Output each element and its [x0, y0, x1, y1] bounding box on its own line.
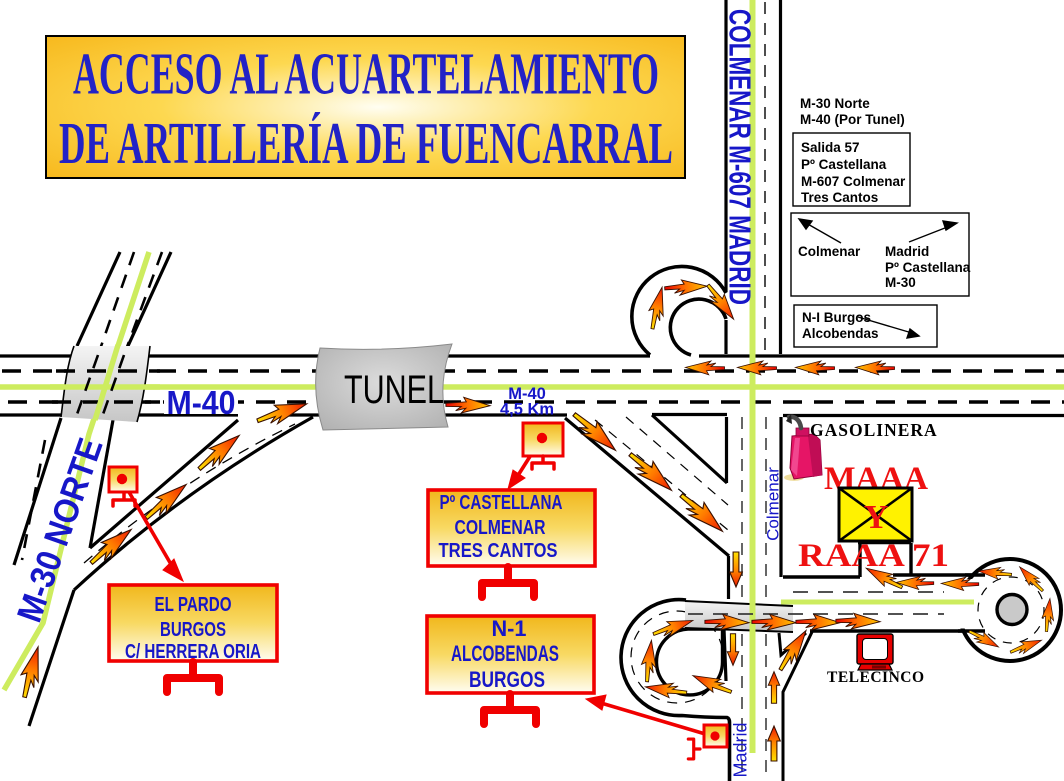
svg-text:M-30: M-30	[885, 275, 916, 290]
svg-text:Pº Castellana: Pº Castellana	[885, 260, 971, 275]
svg-text:TUNEL: TUNEL	[344, 368, 444, 412]
svg-text:4,5 Km: 4,5 Km	[500, 401, 554, 419]
svg-text:Y: Y	[864, 499, 889, 536]
svg-text:N-1: N-1	[492, 616, 527, 641]
svg-text:Madrid: Madrid	[885, 244, 929, 259]
svg-text:COLMENAR: COLMENAR	[455, 517, 546, 539]
svg-text:RAAA 71: RAAA 71	[798, 538, 949, 574]
svg-text:M-607 Colmenar: M-607 Colmenar	[801, 174, 906, 189]
svg-text:EL PARDO: EL PARDO	[155, 593, 232, 616]
svg-text:COLMENAR M-607 MADRID: COLMENAR M-607 MADRID	[723, 9, 758, 305]
svg-text:ACCESO AL ACUARTELAMIENTO: ACCESO AL ACUARTELAMIENTO	[73, 41, 659, 107]
svg-text:M-40 (Por Tunel): M-40 (Por Tunel)	[800, 112, 905, 127]
svg-text:BURGOS: BURGOS	[469, 667, 545, 692]
svg-text:BURGOS: BURGOS	[160, 618, 226, 641]
svg-text:M-30 Norte: M-30 Norte	[800, 96, 870, 111]
svg-text:TELECINCO: TELECINCO	[827, 669, 925, 686]
svg-text:Pº Castellana: Pº Castellana	[801, 157, 887, 172]
svg-text:M-40: M-40	[167, 384, 236, 421]
svg-text:DE ARTILLERÍA DE FUENCARRAL: DE ARTILLERÍA DE FUENCARRAL	[59, 110, 673, 176]
svg-text:Alcobendas: Alcobendas	[802, 326, 879, 341]
svg-text:Pº CASTELLANA: Pº CASTELLANA	[440, 492, 563, 514]
svg-text:Colmenar: Colmenar	[798, 244, 861, 259]
svg-text:ALCOBENDAS: ALCOBENDAS	[451, 641, 559, 666]
svg-text:Tres Cantos: Tres Cantos	[801, 190, 878, 205]
svg-text:GASOLINERA: GASOLINERA	[810, 420, 938, 440]
svg-text:Madrid: Madrid	[731, 722, 751, 777]
svg-text:Colmenar: Colmenar	[764, 467, 783, 541]
svg-text:Salida 57: Salida 57	[801, 140, 860, 155]
svg-text:TRES CANTOS: TRES CANTOS	[439, 540, 558, 562]
